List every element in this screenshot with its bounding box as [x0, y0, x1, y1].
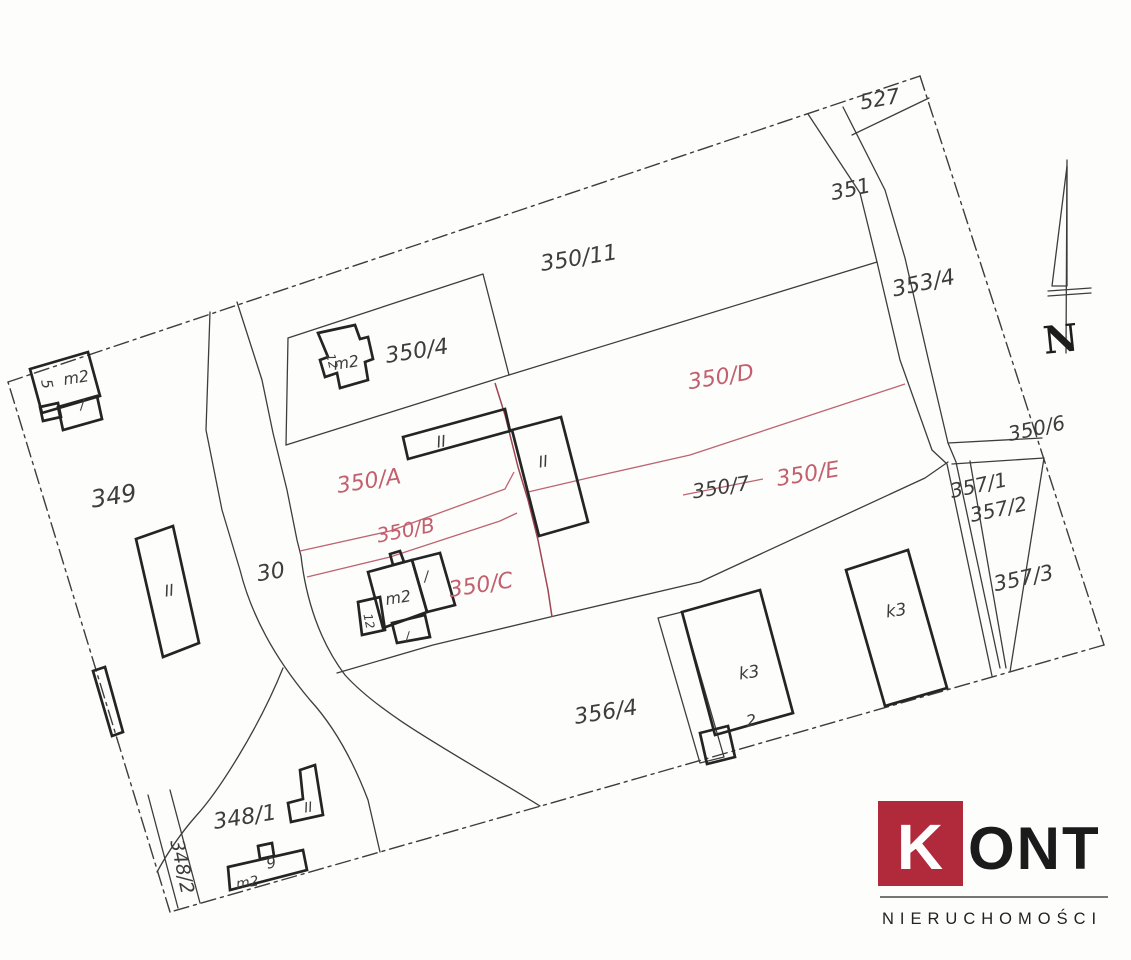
building-label-ii-central: II: [537, 451, 550, 471]
parcel-label-350-4: 350/4: [384, 334, 451, 369]
building-label-12-350C: 12: [360, 612, 377, 630]
parcel-lines: [148, 98, 1044, 908]
parcel-label-349: 349: [89, 479, 139, 514]
building-label-m2-nw: m2: [62, 366, 90, 389]
parcel-350-6-strip-bottom: [952, 458, 1044, 464]
building-k3-right: [846, 550, 947, 706]
building-label-1-350C-right: /: [421, 569, 431, 586]
leanto-strip-356: [658, 612, 724, 763]
kont-logo-ont: ONT: [968, 815, 1101, 882]
building-labels: m2 5 / m2 12 II II II m2 / / 12 II 9 m2 …: [37, 351, 908, 893]
building-label-5-nw: 5: [37, 377, 57, 390]
north-arrow-crossbar-top: [1048, 288, 1091, 291]
building-label-ii-bar: II: [435, 431, 448, 451]
building-349-shed-west: [93, 667, 123, 736]
red-subdivision-lines: [300, 383, 905, 617]
road-30-right-edge: [237, 302, 540, 806]
building-label-1-350C-bottom: /: [403, 630, 412, 646]
north-arrow: N: [1041, 160, 1091, 363]
kont-logo: K ONT NIERUCHOMOŚCI: [878, 801, 1108, 928]
parcel-label-30: 30: [255, 558, 287, 587]
north-arrow-letter: N: [1041, 314, 1080, 362]
parcel-label-350-E: 350/E: [775, 457, 842, 492]
parcel-label-350-6: 350/6: [1006, 410, 1067, 445]
north-arrow-crossbar-bottom: [1048, 293, 1091, 296]
boundary-north: [8, 76, 920, 382]
parcel-label-348-1: 348/1: [212, 800, 279, 835]
building-350C-house-bump: [390, 551, 404, 565]
building-label-m2-348: m2: [235, 873, 260, 892]
parcel-label-353-4: 353/4: [890, 265, 957, 303]
road-30-left-edge: [206, 312, 380, 852]
parcel-label-350-A: 350/A: [335, 464, 403, 499]
cadastral-map: 527 351 353/4 350/11 350/4 349 30 356/4 …: [0, 0, 1131, 960]
building-central-ii: [512, 417, 588, 536]
building-label-m2-350C: m2: [384, 586, 412, 609]
parcel-labels: 527 351 353/4 350/11 350/4 349 30 356/4 …: [89, 84, 1067, 896]
building-label-2-k3: 2: [745, 710, 758, 730]
cadastral-map-page: 527 351 353/4 350/11 350/4 349 30 356/4 …: [0, 0, 1131, 960]
building-label-ii-349: II: [163, 580, 176, 600]
kont-logo-subtitle: NIERUCHOMOŚCI: [882, 909, 1102, 928]
parcel-label-350-D: 350/D: [686, 360, 755, 395]
parcel-label-356-4: 356/4: [573, 695, 640, 730]
parcel-label-350-7-struck: 350/7: [691, 471, 752, 504]
boundary-west: [8, 382, 170, 912]
boundary-south: [170, 645, 1104, 912]
parcel-label-350-11: 350/11: [539, 240, 619, 277]
parcel-label-351: 351: [828, 173, 872, 205]
building-label-ii-348-1: II: [303, 800, 314, 817]
outer-boundary: [8, 76, 1104, 912]
boundary-east: [920, 76, 1104, 645]
buildings: [30, 325, 947, 890]
building-350C-house-bottom: [392, 615, 430, 643]
building-label-k3-right: k3: [884, 600, 908, 623]
building-label-k3-left: k3: [737, 662, 761, 685]
parcel-label-348-2: 348/2: [165, 838, 198, 896]
building-label-12-350-4: 12: [323, 352, 340, 370]
building-bar-ii: [403, 409, 510, 459]
parcel-350-11-south-boundary: [286, 262, 877, 445]
building-k3-left: [682, 590, 793, 735]
kont-logo-k: K: [897, 811, 943, 883]
parcel-label-350-C: 350/C: [447, 568, 516, 603]
parcel-label-350-B: 350/B: [375, 513, 437, 548]
north-arrow-pennant: [1052, 166, 1067, 286]
parcel-label-527: 527: [858, 84, 902, 115]
